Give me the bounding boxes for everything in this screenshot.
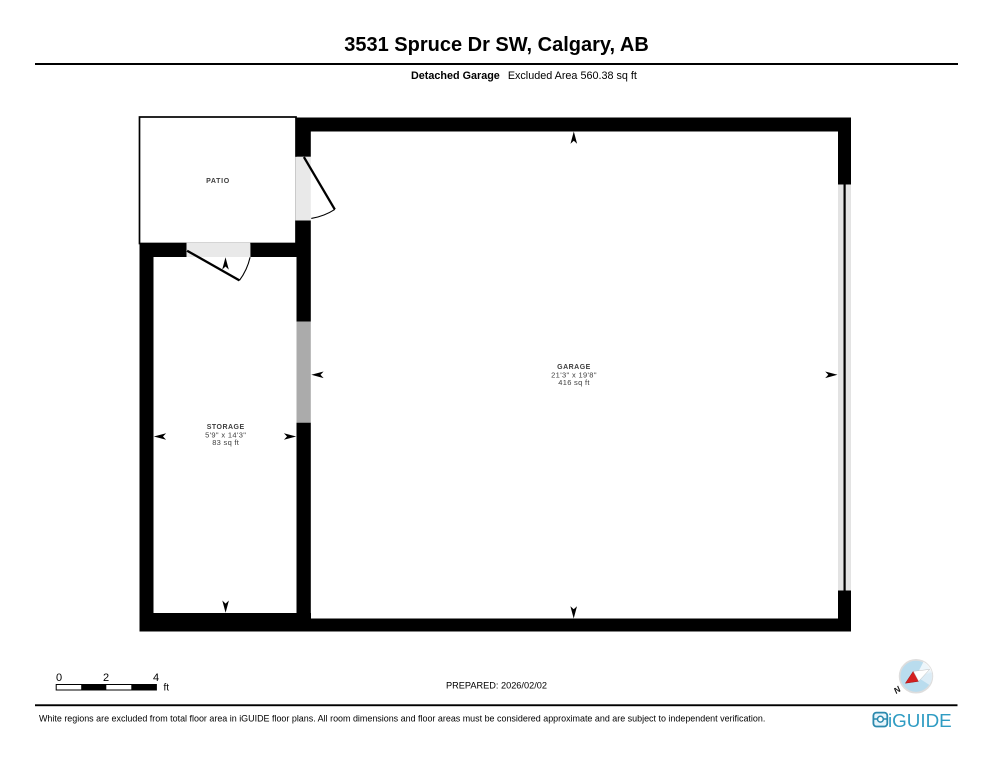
svg-text:iGUIDE: iGUIDE [888, 710, 952, 731]
svg-text:416 sq ft: 416 sq ft [558, 378, 590, 387]
svg-text:PREPARED: 2026/02/02: PREPARED: 2026/02/02 [446, 681, 547, 691]
svg-text:PATIO: PATIO [206, 178, 230, 185]
svg-text:White regions are excluded fro: White regions are excluded from total fl… [39, 714, 765, 724]
svg-text:83 sq ft: 83 sq ft [212, 438, 240, 447]
svg-text:0: 0 [56, 672, 62, 684]
svg-text:2: 2 [103, 672, 109, 684]
svg-text:4: 4 [153, 672, 159, 684]
svg-text:ft: ft [164, 683, 170, 694]
